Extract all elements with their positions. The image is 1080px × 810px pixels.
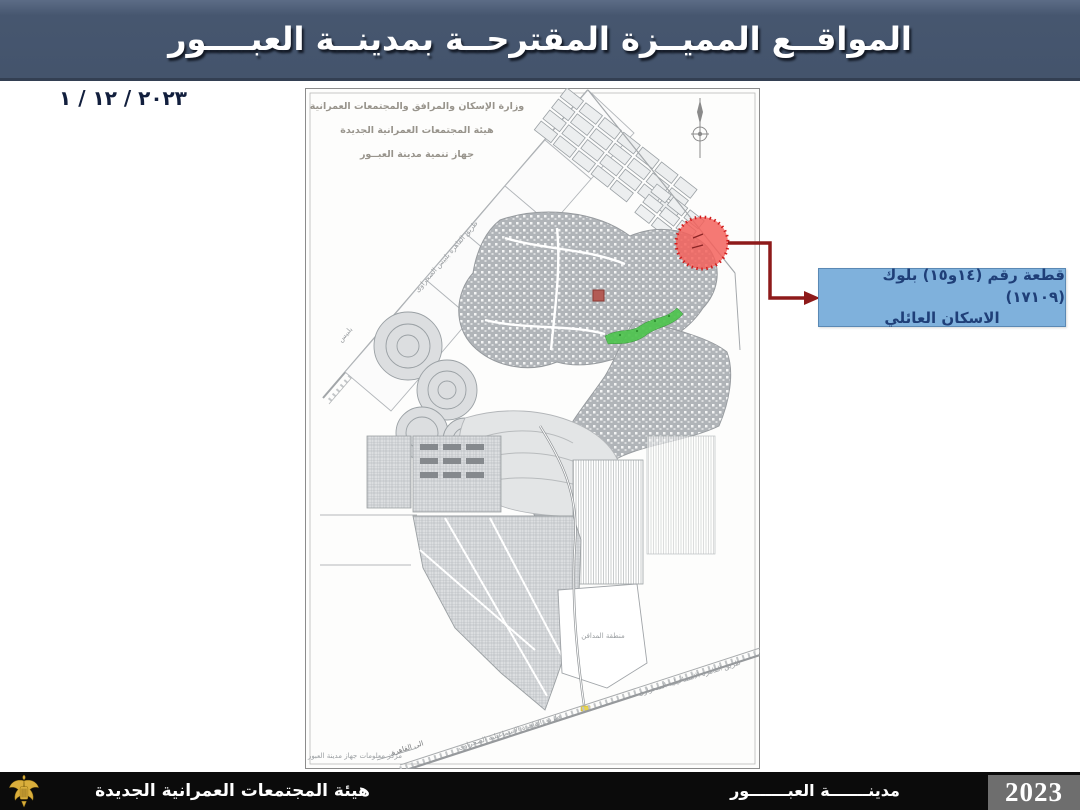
ministry-line2: هيئة المجتمعات العمرانية الجديدة xyxy=(340,125,494,136)
footer-city-label: مدينـــــــة العبـــــــور xyxy=(660,772,970,810)
info-center-label: مركز معلومات جهاز مدينة العبور xyxy=(307,752,402,760)
west-block xyxy=(367,436,411,508)
date-label: ٢٠٢٣ / ١٢ / ١ xyxy=(28,86,218,110)
egypt-eagle-icon xyxy=(8,773,40,810)
ministry-line3: جهاز تنمية مدينة العبــور xyxy=(359,149,474,160)
page-title: المواقــع المميــزة المقترحــة بمدينــة … xyxy=(168,20,912,58)
header-bar: المواقــع المميــزة المقترحــة بمدينــة … xyxy=(0,0,1080,81)
callout-box: قطعة رقم (١٤و١٥) بلوك (١٧١٠٩) الاسكان ال… xyxy=(818,268,1066,327)
callout-line2: الاسكان العائلي xyxy=(884,308,999,330)
hatched-parcels-2 xyxy=(647,436,715,554)
footer-authority-label: هيئة المجتمعات العمرانية الجديدة xyxy=(60,772,405,810)
ministry-line1: وزارة الإسكان والمرافق والمجتمعات العمرا… xyxy=(310,101,525,112)
year-badge: 2023 xyxy=(988,775,1080,810)
callout-line1: قطعة رقم (١٤و١٥) بلوك (١٧١٠٩) xyxy=(819,265,1065,309)
highlight-circle xyxy=(676,217,728,269)
hatched-parcels xyxy=(573,460,643,584)
west-block-bars xyxy=(420,444,484,478)
cemetery-label: منطقة المدافن xyxy=(581,632,625,640)
city-map: وزارة الإسكان والمرافق والمجتمعات العمرا… xyxy=(305,88,760,769)
landmark-square xyxy=(593,290,604,301)
footer-bar: هيئة المجتمعات العمرانية الجديدة مدينـــ… xyxy=(0,772,1080,810)
slide: { "header": { "title": "المواقــع المميـ… xyxy=(0,0,1080,810)
city-map-drawing: وزارة الإسكان والمرافق والمجتمعات العمرا… xyxy=(305,88,760,769)
